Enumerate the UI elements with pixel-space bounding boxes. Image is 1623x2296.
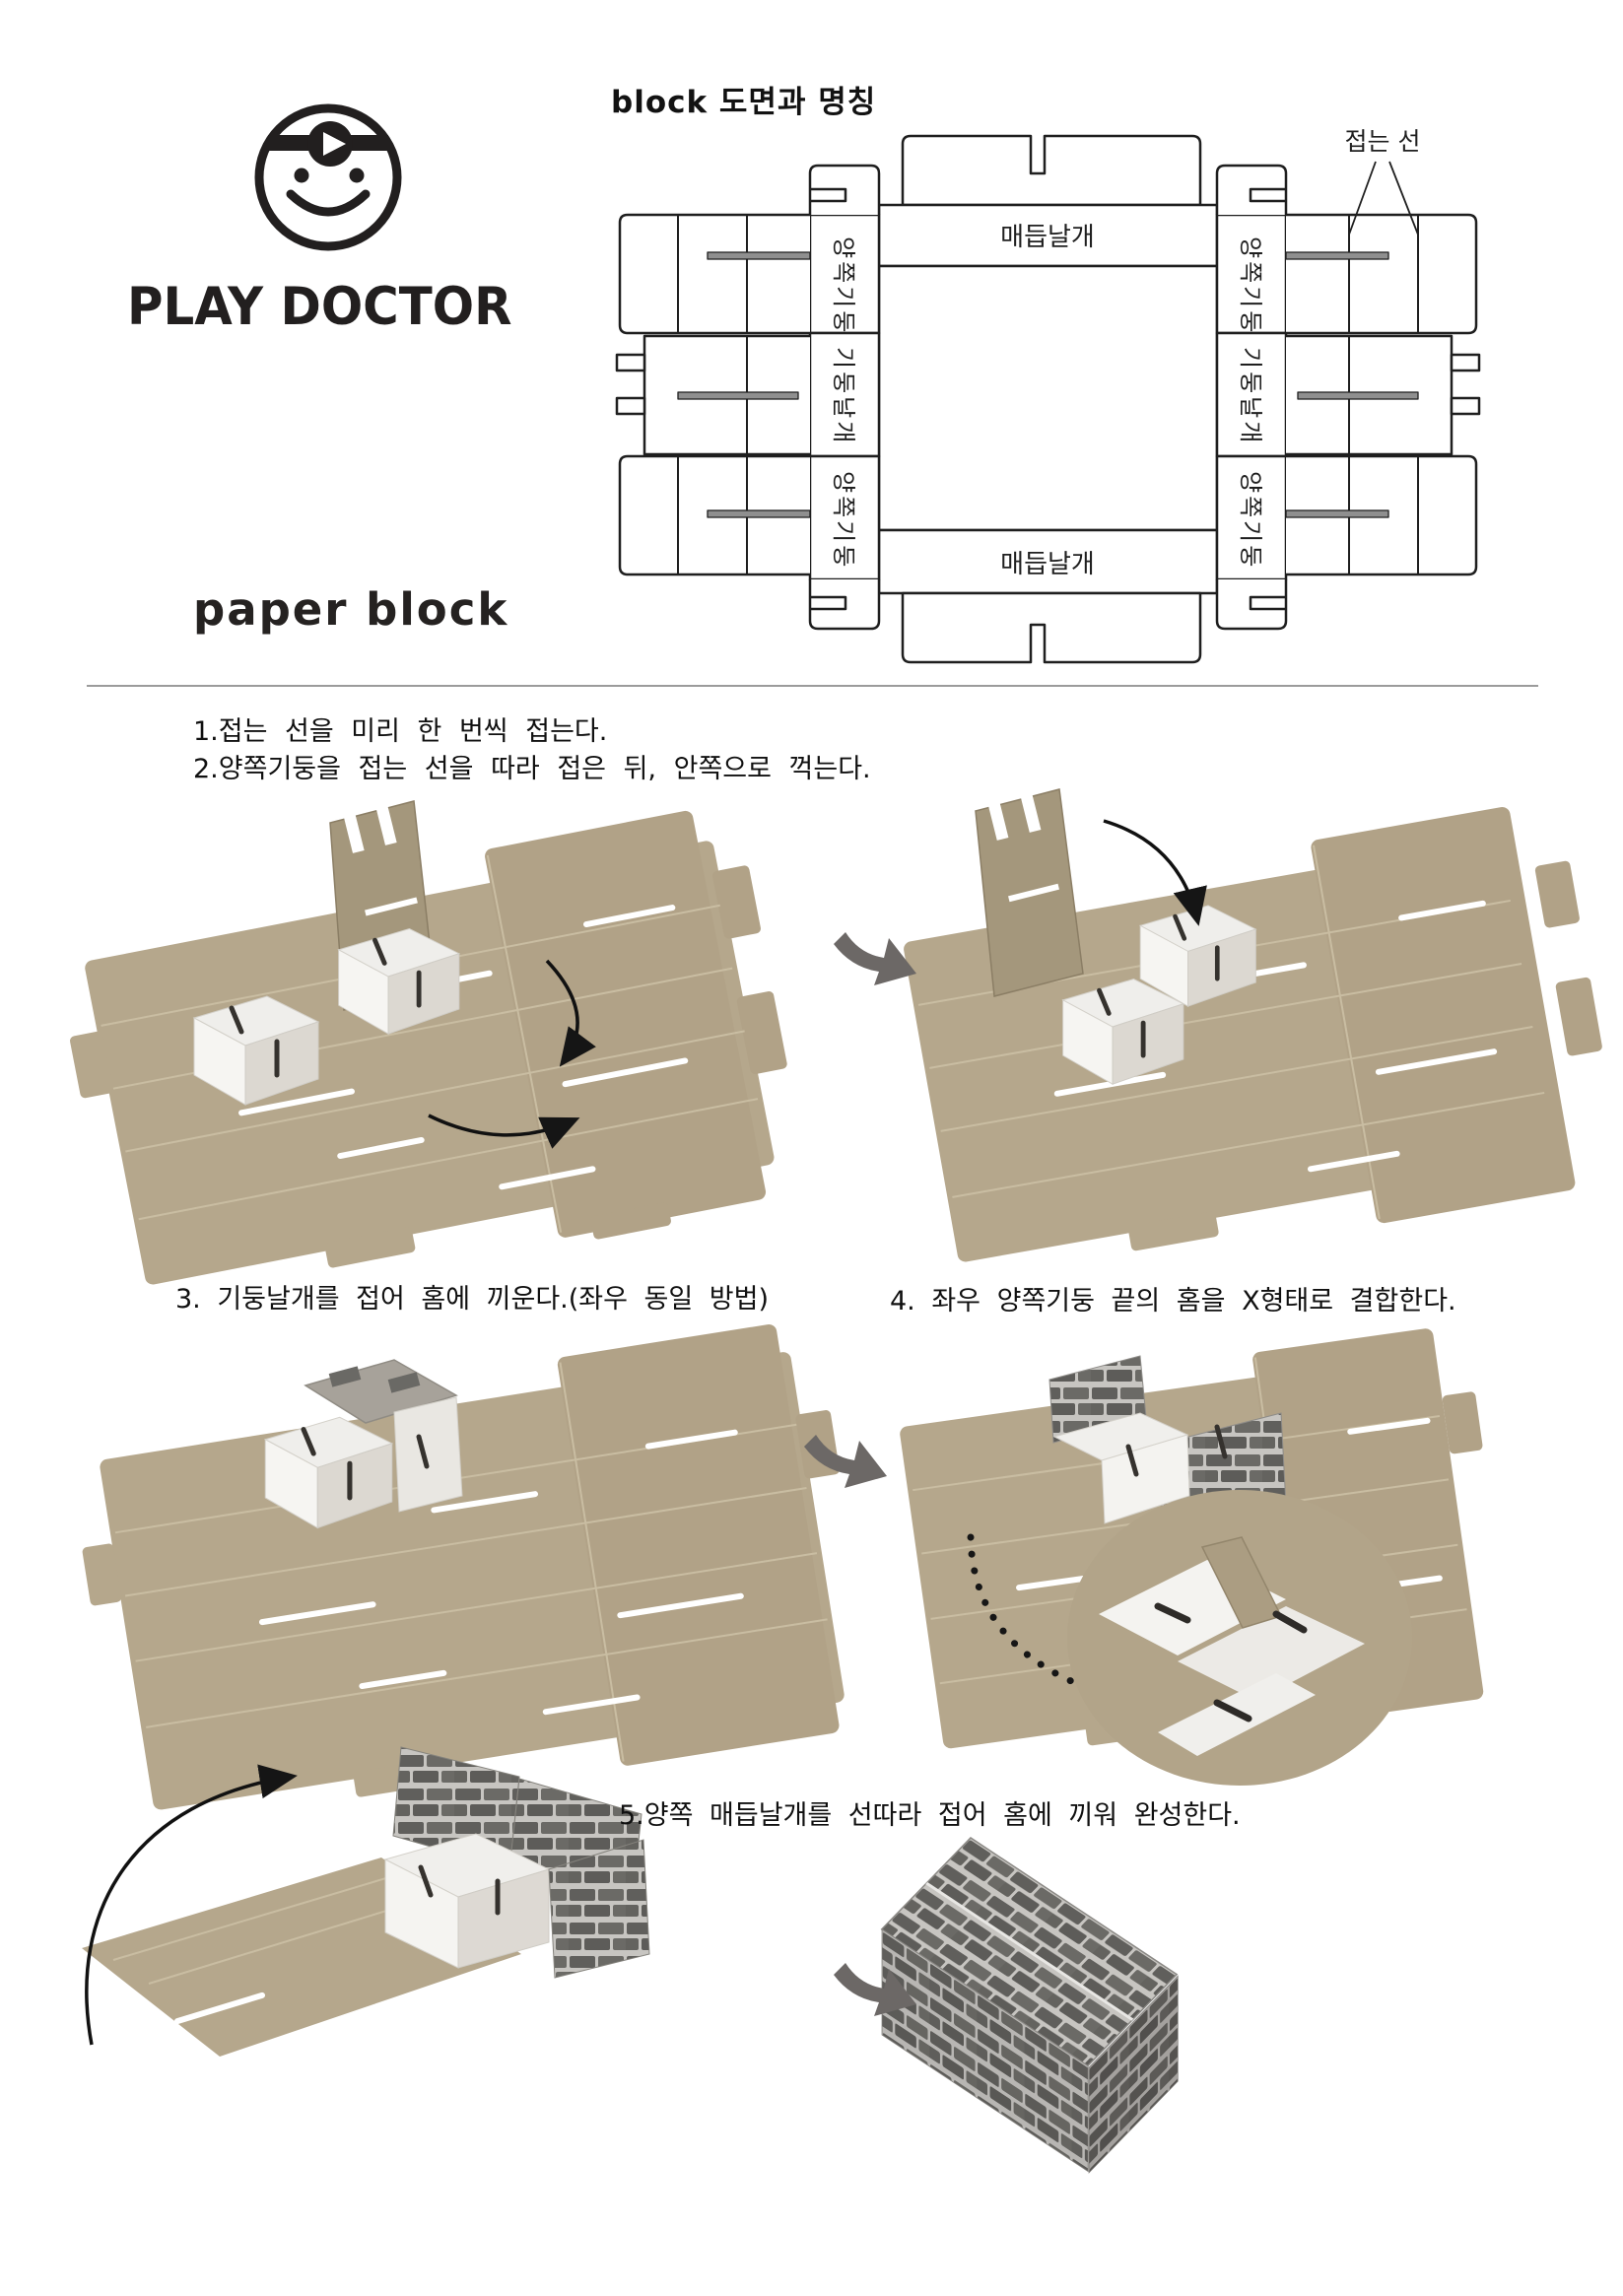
- product-name-text: paper block: [193, 583, 508, 636]
- right-wing-top: [1286, 215, 1476, 333]
- next-step-arrow-icon: [834, 932, 916, 985]
- upright-wing: [976, 789, 1083, 996]
- photo-step1-before: [49, 801, 813, 1331]
- instruction-step-5: 5.양쪽 매듭날개를 선따라 접어 홈에 끼워 완성한다.: [619, 1793, 1241, 1832]
- label-pillar-wing-right: 기둥날개: [1237, 347, 1264, 445]
- sheet-artwork: 매듭날개 매듭날개 양쪽기둥 기둥날개 양쪽기둥 양쪽기둥 기둥날개 양쪽기둥 …: [0, 0, 1623, 2296]
- left-wing-top: [620, 215, 810, 333]
- section-divider: [87, 685, 1538, 687]
- instruction-step-3: 3. 기둥날개를 접어 홈에 끼운다.(좌우 동일 방법): [175, 1277, 769, 1316]
- play-doctor-logo-icon: [259, 108, 397, 246]
- block-diecut-diagram: [617, 136, 1479, 662]
- instruction-sheet: 매듭날개 매듭날개 양쪽기둥 기둥날개 양쪽기둥 양쪽기둥 기둥날개 양쪽기둥 …: [0, 0, 1623, 2296]
- label-knot-wing-top: 매듭날개: [1000, 223, 1095, 252]
- detail-inset-circle: [1067, 1490, 1412, 1786]
- instruction-step-4: 4. 좌우 양쪽기둥 끝의 홈을 X형태로 결합한다.: [890, 1279, 1456, 1317]
- photo-step4: [896, 1322, 1518, 1786]
- label-side-pillar-right-top: 양쪽기둥: [1237, 236, 1264, 335]
- label-pillar-wing-left: 기둥날개: [830, 347, 857, 445]
- label-side-pillar-left-top: 양쪽기둥: [830, 236, 857, 335]
- instruction-list: 1.접는 선을 미리 한 번씩 접는다. 2.양쪽기둥을 접는 선을 따라 접은…: [193, 713, 871, 788]
- diagram-title: block 도면과 명칭: [611, 77, 876, 121]
- label-knot-wing-bottom: 매듭날개: [1000, 550, 1095, 579]
- bottom-tab: [903, 593, 1200, 662]
- center-panel: [879, 266, 1217, 530]
- instruction-step-2: 2.양쪽기둥을 접는 선을 따라 접은 뒤, 안쪽으로 꺽는다.: [193, 751, 871, 788]
- half-closed-block: [385, 1747, 649, 1978]
- top-tab: [903, 136, 1200, 205]
- brand-logo-text: PLAY DOCTOR: [127, 277, 511, 337]
- photo-step2-after: [898, 789, 1623, 1297]
- label-side-pillar-left-bottom: 양쪽기둥: [830, 471, 857, 570]
- instruction-step-1: 1.접는 선을 미리 한 번씩 접는다.: [193, 713, 871, 751]
- folded-pillar-assembly: [265, 1360, 462, 1528]
- photo-finished-block: [882, 1838, 1179, 2173]
- fold-line-label: 접는 선: [1345, 127, 1421, 156]
- label-side-pillar-right-bottom: 양쪽기둥: [1237, 471, 1264, 570]
